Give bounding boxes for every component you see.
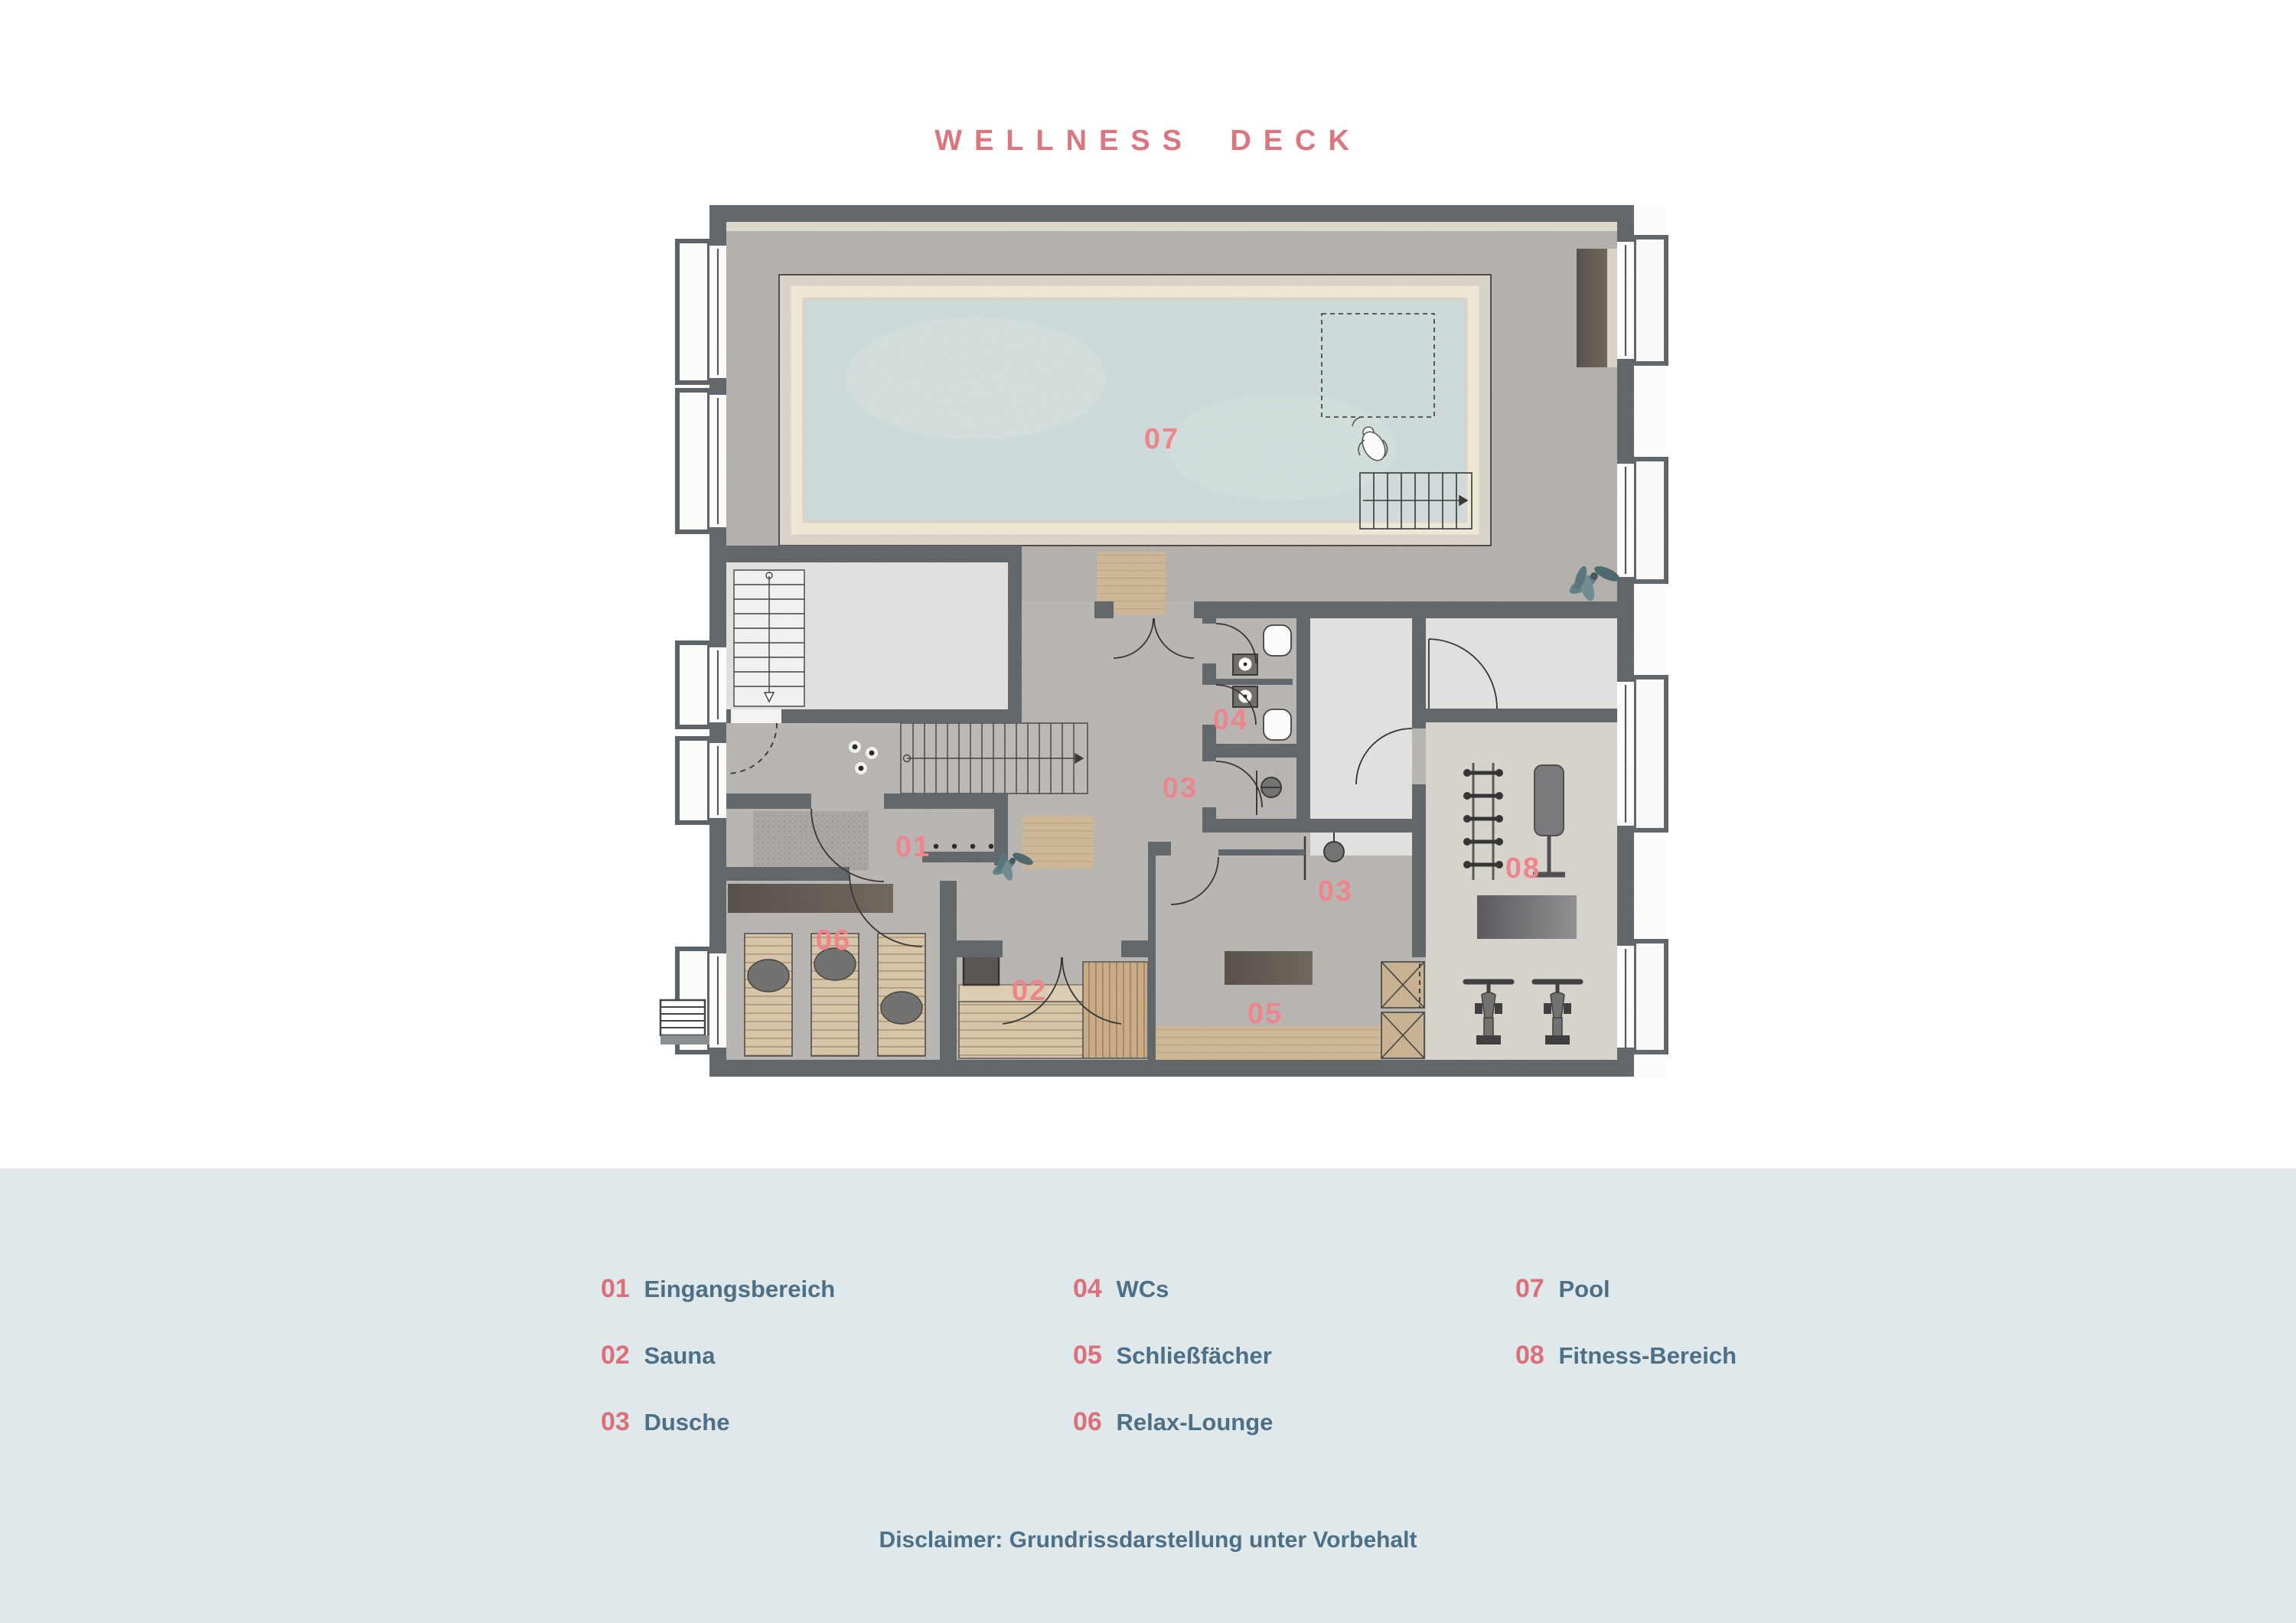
legend-label: Eingangsbereich (644, 1276, 835, 1302)
legend-number: 07 (1515, 1272, 1555, 1305)
disclaimer-text: Disclaimer: Grundrissdarstellung unter V… (0, 1527, 2296, 1553)
page: WELLNESS DECK (0, 0, 2296, 1623)
room-label-06: 06 (816, 924, 851, 957)
legend-label: Relax-Lounge (1116, 1409, 1273, 1436)
room-label-04: 04 (1213, 704, 1248, 736)
legend-label: Fitness-Bereich (1558, 1342, 1737, 1369)
legend-panel (0, 1168, 2296, 1623)
legend-item-02: 02 Sauna (601, 1338, 715, 1372)
legend-item-08: 08 Fitness-Bereich (1515, 1338, 1737, 1372)
legend-number: 01 (601, 1272, 641, 1305)
legend-number: 08 (1515, 1338, 1555, 1372)
room-label-05: 05 (1247, 998, 1283, 1030)
legend-number: 02 (601, 1338, 641, 1372)
exterior-stair (660, 1000, 709, 1045)
legend-label: Sauna (644, 1342, 715, 1369)
legend-item-06: 06 Relax-Lounge (1073, 1405, 1273, 1439)
legend-label: Pool (1558, 1276, 1609, 1302)
floor-plan: 070403010306020508 (654, 187, 1680, 1087)
page-title: WELLNESS DECK (0, 125, 2296, 158)
legend-number: 03 (601, 1405, 641, 1439)
legend-label: Dusche (644, 1409, 729, 1436)
legend-item-01: 01 Eingangsbereich (601, 1272, 835, 1305)
legend-label: Schließfächer (1116, 1342, 1271, 1369)
legend-label: WCs (1116, 1276, 1169, 1302)
room-label-02: 02 (1012, 975, 1047, 1007)
legend-item-03: 03 Dusche (601, 1405, 729, 1439)
legend-number: 06 (1073, 1405, 1113, 1439)
legend-number: 05 (1073, 1338, 1113, 1372)
room-label-08: 08 (1505, 852, 1541, 885)
room-label-03: 03 (1163, 772, 1198, 804)
legend-number: 04 (1073, 1272, 1113, 1305)
room-label-07: 07 (1144, 423, 1179, 455)
room-label-03: 03 (1318, 875, 1353, 908)
room-label-01: 01 (895, 831, 931, 863)
legend-item-05: 05 Schließfächer (1073, 1338, 1272, 1372)
legend-item-04: 04 WCs (1073, 1272, 1169, 1305)
legend-item-07: 07 Pool (1515, 1272, 1610, 1305)
